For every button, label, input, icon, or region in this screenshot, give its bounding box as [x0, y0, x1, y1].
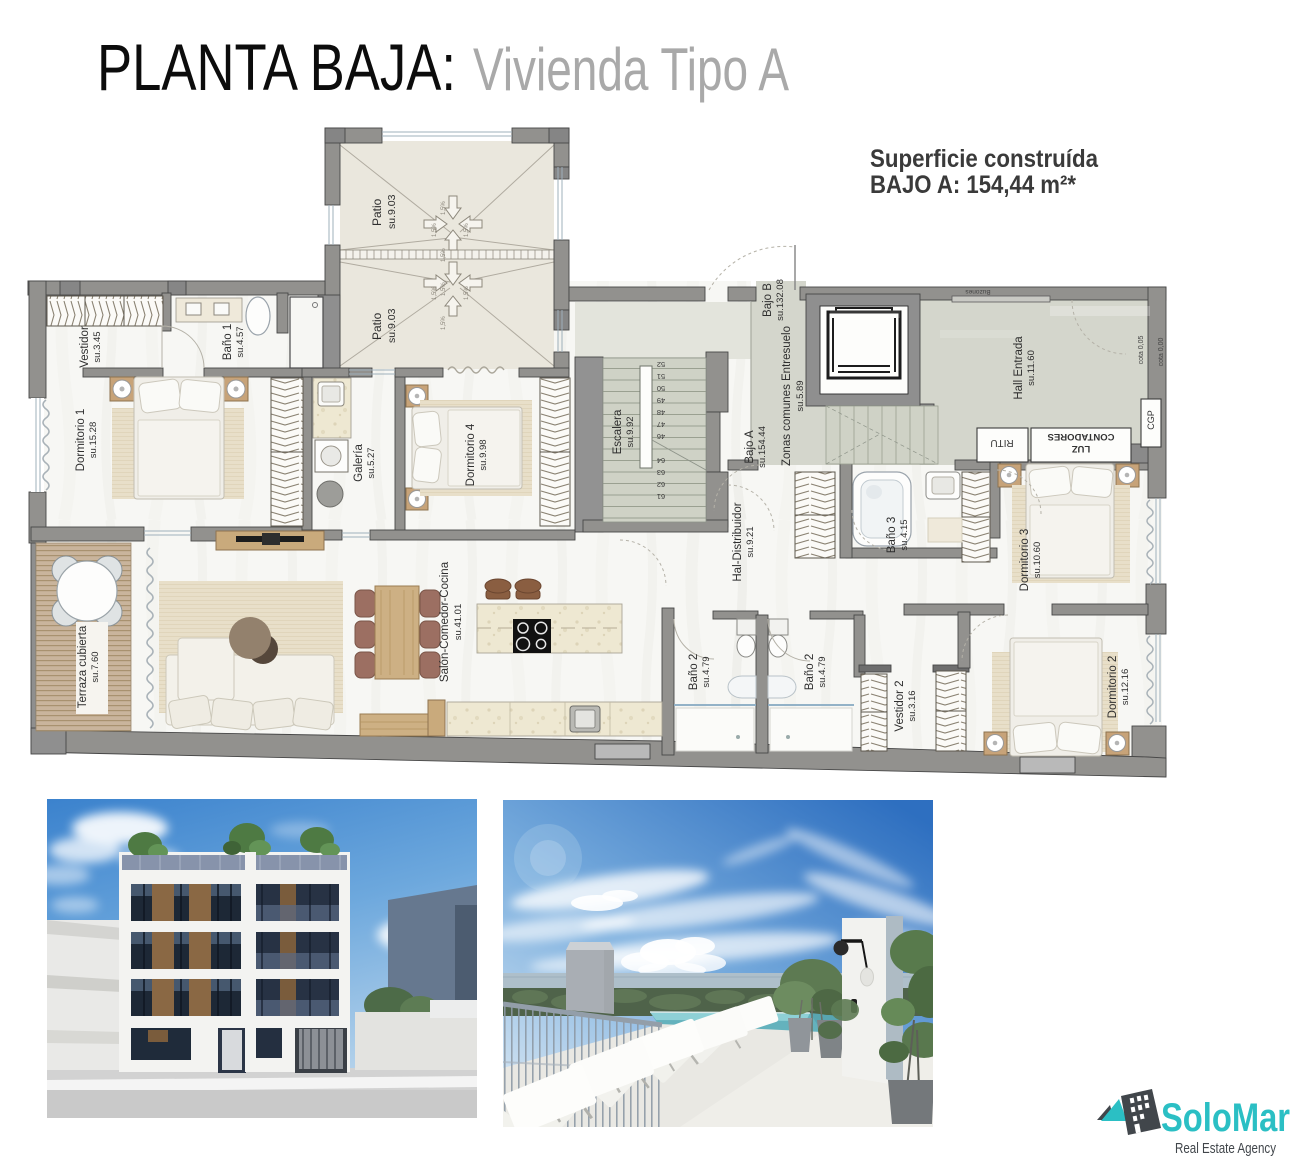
svg-text:Baño 3: Baño 3 [886, 517, 898, 553]
svg-text:su.5.89: su.5.89 [795, 380, 806, 411]
svg-text:su.9.03: su.9.03 [386, 308, 398, 343]
svg-text:46: 46 [657, 432, 665, 441]
svg-text:Real Estate Agency: Real Estate Agency [1175, 1140, 1276, 1157]
svg-text:Terraza cubierta: Terraza cubierta [77, 625, 89, 708]
svg-text:Bajo A: Bajo A [744, 430, 756, 464]
svg-text:1,5%: 1,5% [464, 286, 470, 300]
svg-text:su.10.60: su.10.60 [1032, 542, 1043, 578]
svg-text:Hall Entrada: Hall Entrada [1013, 336, 1025, 400]
svg-text:Salón-Comedor-Cocina: Salón-Comedor-Cocina [439, 561, 451, 682]
svg-text:cota 0,00: cota 0,00 [1158, 337, 1165, 366]
svg-text:RITU: RITU [990, 437, 1013, 448]
svg-text:1,5%: 1,5% [441, 316, 447, 330]
svg-text:48: 48 [657, 408, 665, 417]
svg-text:62: 62 [657, 480, 665, 489]
svg-text:su.154.44: su.154.44 [757, 426, 768, 468]
svg-text:64: 64 [657, 456, 665, 465]
svg-text:su.4.57: su.4.57 [235, 326, 246, 357]
svg-text:1,5%: 1,5% [464, 223, 470, 237]
svg-text:Vestidor: Vestidor [79, 326, 91, 368]
svg-text:Vivienda Tipo A: Vivienda Tipo A [473, 36, 789, 103]
svg-text:su.9.98: su.9.98 [478, 439, 489, 470]
svg-text:PLANTA BAJA:: PLANTA BAJA: [97, 30, 456, 104]
svg-text:Galería: Galería [353, 444, 365, 482]
svg-text:SoloMar: SoloMar [1161, 1096, 1290, 1140]
svg-text:su.9.92: su.9.92 [625, 416, 636, 447]
svg-text:su.4.15: su.4.15 [899, 519, 910, 550]
svg-text:49: 49 [657, 396, 665, 405]
svg-text:su.9.03: su.9.03 [386, 194, 398, 229]
svg-text:su.41.01: su.41.01 [453, 604, 464, 640]
svg-text:Superficie construída: Superficie construída [870, 145, 1099, 173]
svg-text:Patio: Patio [370, 198, 384, 226]
svg-text:su.7.60: su.7.60 [90, 651, 101, 682]
svg-text:63: 63 [657, 468, 665, 477]
svg-text:Baño 1: Baño 1 [222, 324, 234, 360]
svg-text:Vestidor 2: Vestidor 2 [894, 680, 906, 731]
svg-text:su.12.16: su.12.16 [1120, 669, 1131, 705]
svg-text:su.15.28: su.15.28 [88, 422, 99, 458]
svg-text:1,5%: 1,5% [432, 223, 438, 237]
svg-text:CONTADORES: CONTADORES [1048, 431, 1115, 442]
svg-text:Baño 2: Baño 2 [804, 654, 816, 690]
svg-text:su.4.79: su.4.79 [817, 656, 828, 687]
svg-text:su.3.45: su.3.45 [92, 331, 103, 362]
svg-text:Zonas comunes Entresuelo: Zonas comunes Entresuelo [781, 326, 793, 466]
svg-text:50: 50 [657, 384, 665, 393]
svg-text:1,5%: 1,5% [441, 282, 447, 296]
svg-text:su.11.60: su.11.60 [1026, 350, 1037, 386]
svg-text:Dormitorio 2: Dormitorio 2 [1107, 656, 1119, 719]
svg-text:51: 51 [657, 372, 665, 381]
svg-text:su.5.27: su.5.27 [366, 447, 377, 478]
svg-text:61: 61 [657, 492, 665, 501]
svg-text:LUZ: LUZ [1072, 443, 1091, 454]
svg-text:su.9.21: su.9.21 [745, 526, 756, 557]
svg-text:Dormitorio 1: Dormitorio 1 [75, 409, 87, 472]
svg-text:1,5%: 1,5% [441, 201, 447, 215]
svg-text:Escalera: Escalera [612, 409, 624, 454]
svg-text:su.4.79: su.4.79 [701, 656, 712, 687]
svg-text:BAJO A: 154,44 m²*: BAJO A: 154,44 m²* [870, 171, 1076, 199]
svg-text:cota 0,05: cota 0,05 [1138, 335, 1145, 364]
svg-text:su.132.08: su.132.08 [775, 279, 786, 321]
svg-text:Baño 2: Baño 2 [688, 654, 700, 690]
svg-text:Hal-Distribuidor: Hal-Distribuidor [732, 502, 744, 581]
svg-text:Buzones: Buzones [965, 288, 991, 295]
svg-text:Dormitorio 4: Dormitorio 4 [465, 423, 477, 486]
svg-text:1,5%: 1,5% [441, 248, 447, 262]
svg-text:CGP: CGP [1146, 410, 1156, 430]
svg-text:Dormitorio 3: Dormitorio 3 [1019, 529, 1031, 592]
svg-text:1,5%: 1,5% [432, 286, 438, 300]
svg-text:52: 52 [657, 360, 665, 369]
svg-text:su.3.16: su.3.16 [907, 690, 918, 721]
svg-text:47: 47 [657, 420, 665, 429]
svg-text:Patio: Patio [370, 312, 384, 340]
svg-text:Bajo B: Bajo B [762, 283, 774, 317]
